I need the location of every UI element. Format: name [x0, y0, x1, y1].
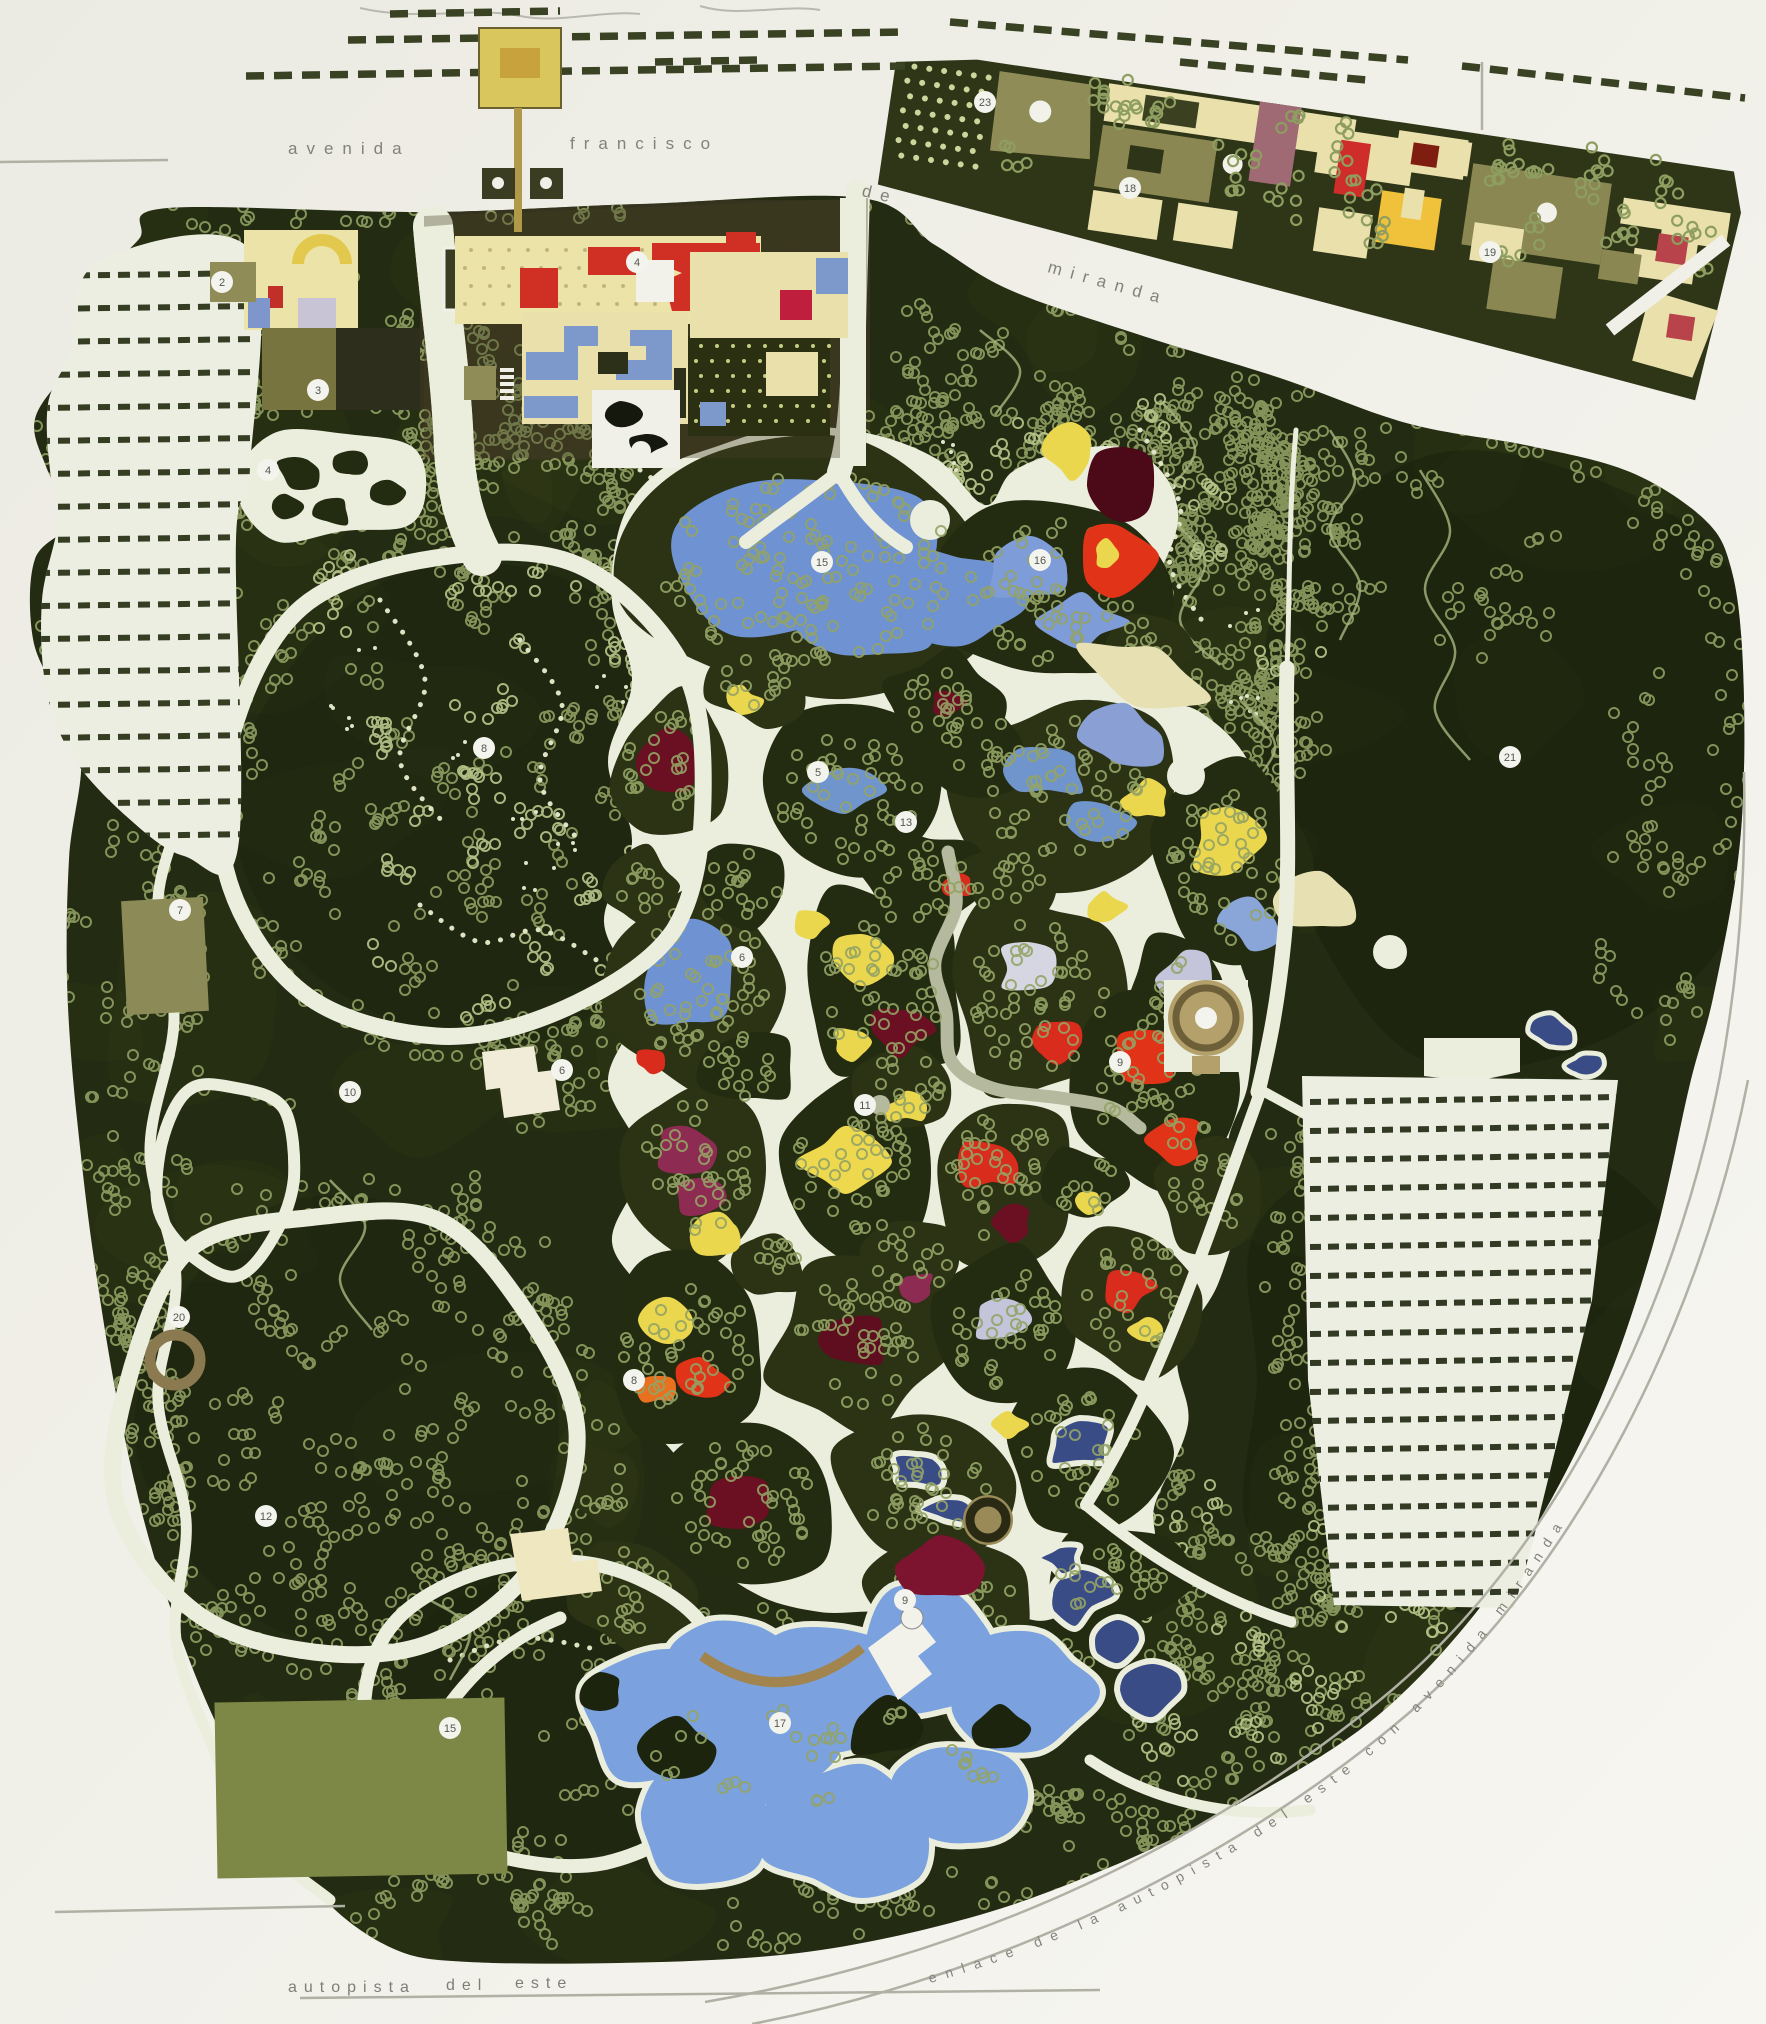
- svg-text:6: 6: [559, 1065, 565, 1077]
- svg-text:4: 4: [265, 465, 271, 477]
- svg-text:9: 9: [1117, 1057, 1123, 1069]
- svg-text:avenida: avenida: [288, 139, 411, 158]
- svg-text:6: 6: [739, 952, 745, 964]
- svg-text:francisco: francisco: [570, 134, 719, 153]
- svg-text:23: 23: [979, 97, 991, 109]
- svg-text:15: 15: [444, 1723, 456, 1735]
- svg-text:17: 17: [774, 1718, 786, 1730]
- svg-text:5: 5: [815, 767, 821, 779]
- svg-text:2: 2: [219, 277, 225, 289]
- svg-text:7: 7: [177, 905, 183, 917]
- svg-text:20: 20: [173, 1312, 185, 1324]
- svg-text:9: 9: [902, 1595, 908, 1607]
- svg-text:este: este: [515, 1975, 573, 1992]
- svg-text:autopista: autopista: [288, 1979, 416, 1996]
- svg-text:13: 13: [900, 817, 912, 829]
- svg-text:del: del: [446, 1977, 488, 1994]
- svg-text:8: 8: [631, 1375, 637, 1387]
- svg-text:16: 16: [1034, 555, 1046, 567]
- svg-text:4: 4: [634, 257, 640, 269]
- svg-text:19: 19: [1484, 247, 1496, 259]
- svg-text:15: 15: [816, 557, 828, 569]
- svg-text:21: 21: [1504, 752, 1516, 764]
- svg-text:3: 3: [315, 385, 321, 397]
- svg-text:12: 12: [260, 1511, 272, 1523]
- svg-text:8: 8: [481, 743, 487, 755]
- svg-text:10: 10: [344, 1087, 356, 1099]
- svg-text:18: 18: [1124, 183, 1136, 195]
- svg-text:11: 11: [859, 1100, 870, 1112]
